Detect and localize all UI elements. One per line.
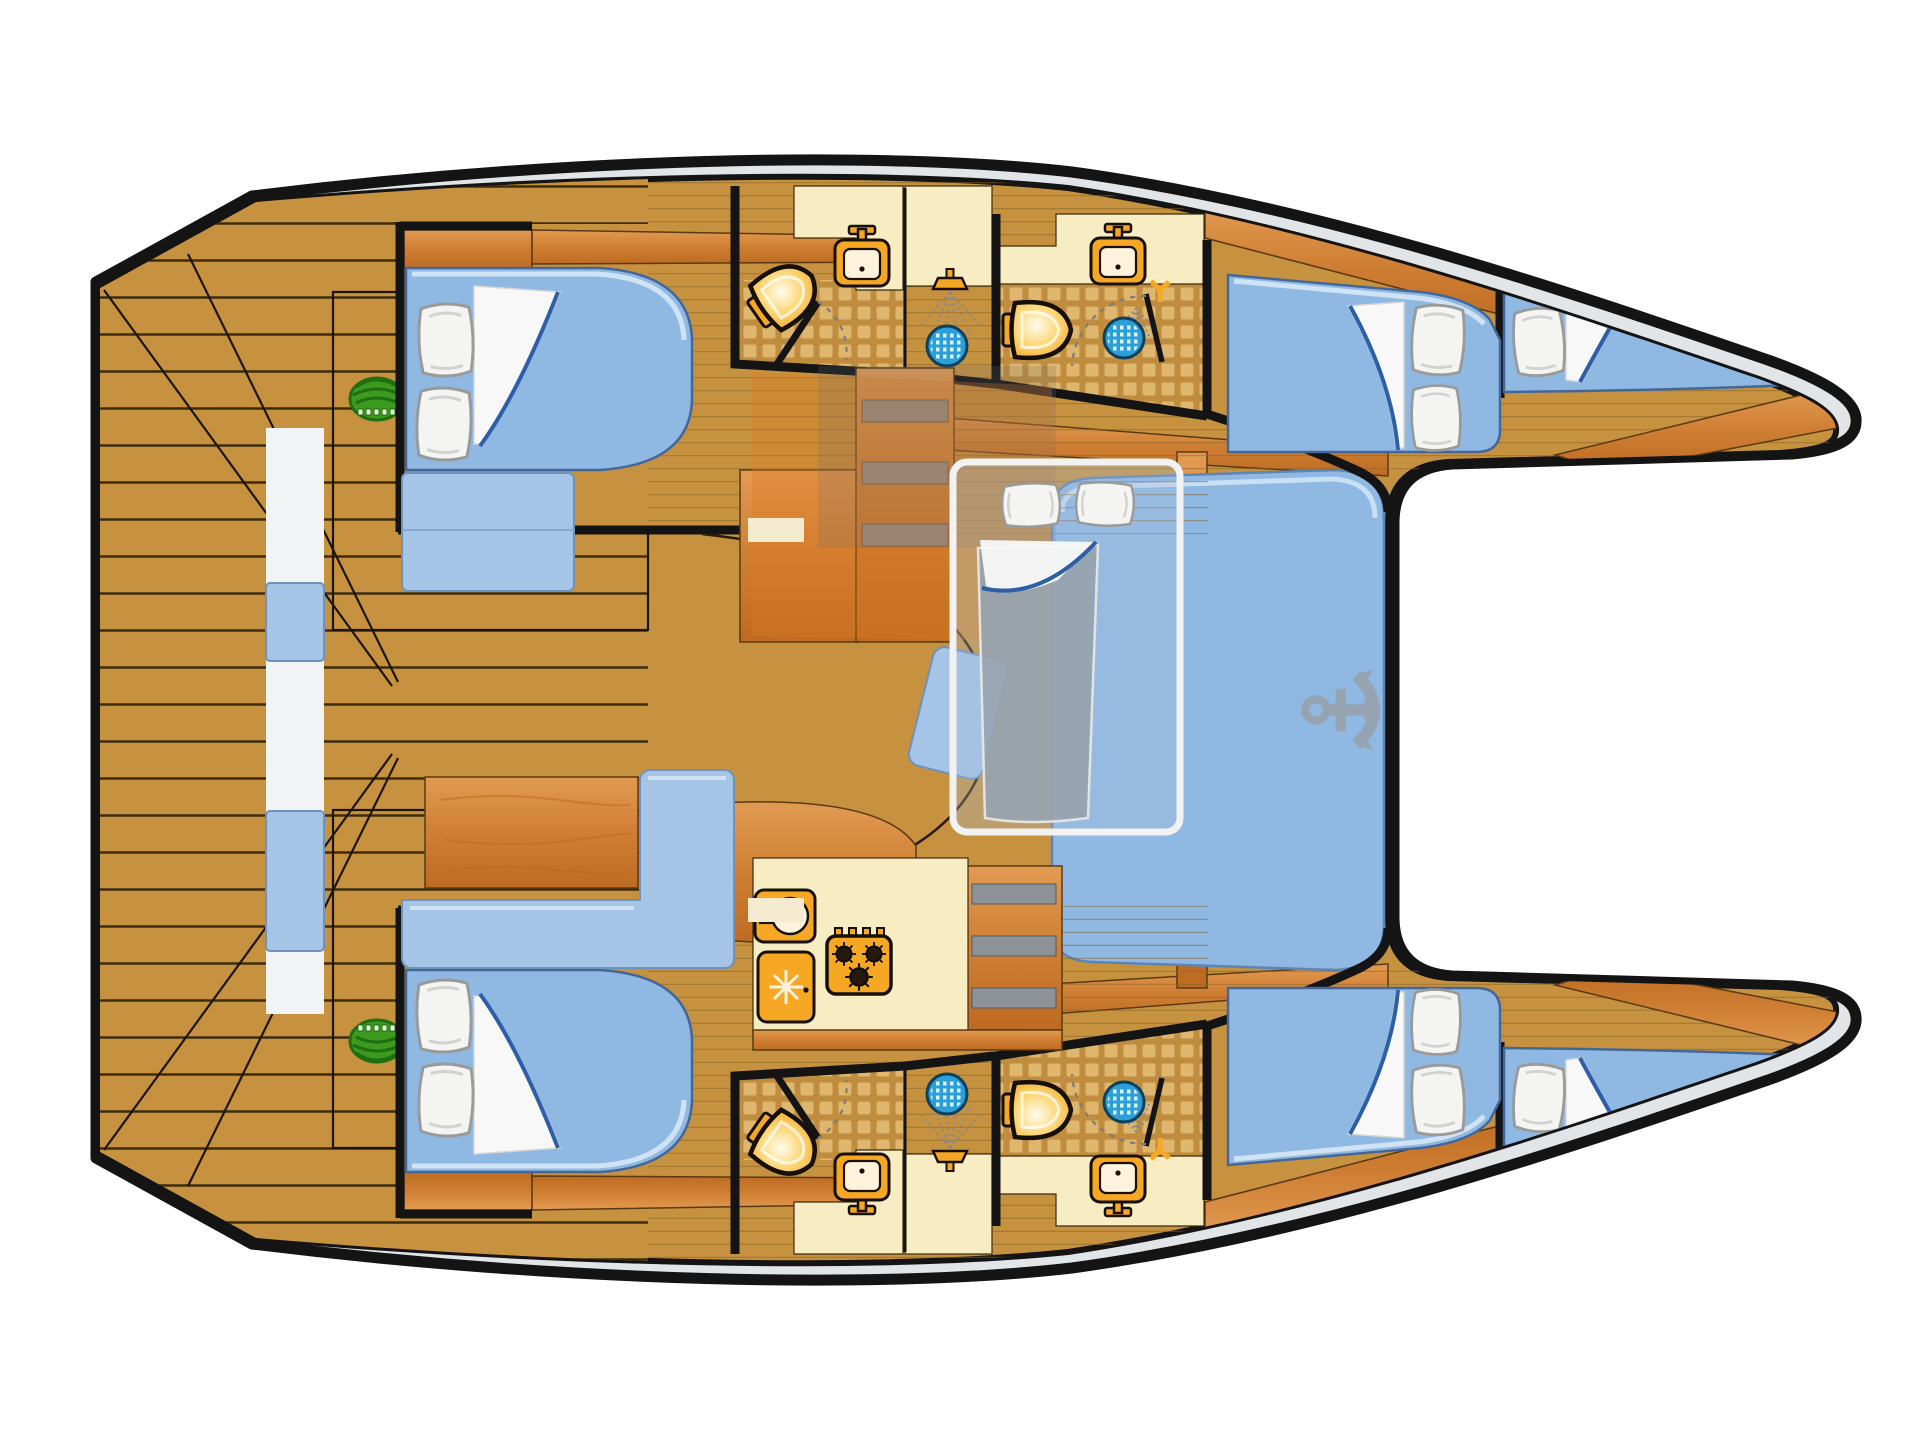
pillow xyxy=(1001,482,1060,527)
toilet-fwd xyxy=(1003,302,1071,358)
pillow xyxy=(1075,481,1134,526)
walkway-cushion-lower xyxy=(266,811,324,951)
pillow xyxy=(1512,307,1567,378)
galley-counter-edge xyxy=(753,1030,1062,1050)
walkway-cushion-upper xyxy=(266,583,324,661)
step xyxy=(972,988,1056,1008)
door-sill-starboard xyxy=(748,898,804,922)
companionway-starboard xyxy=(966,866,1062,1030)
pillow xyxy=(1410,304,1466,376)
galley-fridge xyxy=(758,952,814,1022)
aft-cabin-headboard xyxy=(404,230,532,268)
burner xyxy=(832,942,856,966)
salon-berth-overlay xyxy=(953,462,1180,832)
cockpit-table xyxy=(425,777,638,888)
snowflake-icon xyxy=(769,970,803,1004)
pillow xyxy=(416,387,472,461)
cabin-foot-bench-port xyxy=(402,473,574,591)
burner xyxy=(862,942,886,966)
shower-drain-aft xyxy=(927,326,967,366)
plan-canvas xyxy=(0,0,1920,1440)
cabin-fwd-bed xyxy=(1228,275,1500,452)
pillow xyxy=(1411,385,1462,451)
burner xyxy=(845,963,873,991)
galley-stove xyxy=(827,928,891,994)
shower-drain-fwd xyxy=(1104,318,1144,358)
pillow xyxy=(418,303,474,377)
door-sill-port xyxy=(748,518,804,542)
cabin-aft-bed xyxy=(406,268,692,470)
boat-floor-plan xyxy=(0,0,1920,1440)
step xyxy=(972,884,1056,904)
step xyxy=(972,936,1056,956)
